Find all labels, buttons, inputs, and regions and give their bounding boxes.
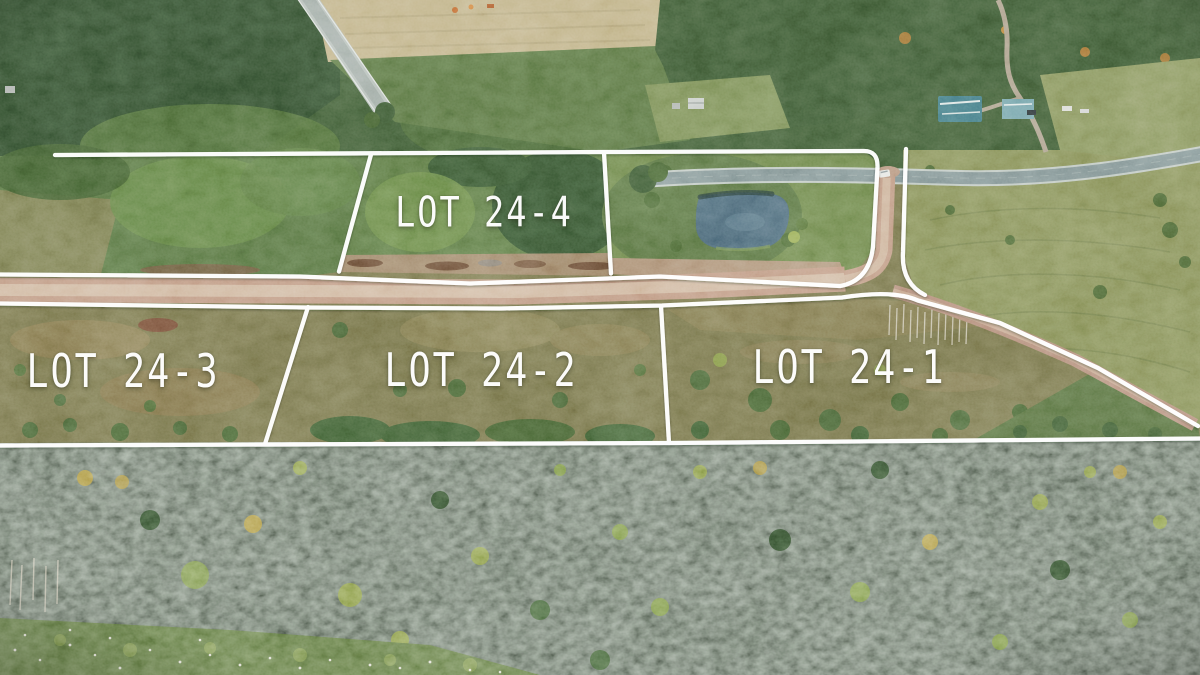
lot-label-24-1: LOT 24-1: [752, 340, 945, 394]
lot-label-24-4: LOT 24-4: [395, 188, 573, 237]
aerial-photo-stage: LOT 24-4 LOT 24-3 LOT 24-2 LOT 24-1: [0, 0, 1200, 675]
lot-label-24-3: LOT 24-3: [26, 344, 219, 398]
vignette: [0, 0, 1200, 675]
aerial-photo: [0, 0, 1200, 675]
lot-label-24-2: LOT 24-2: [384, 343, 577, 397]
